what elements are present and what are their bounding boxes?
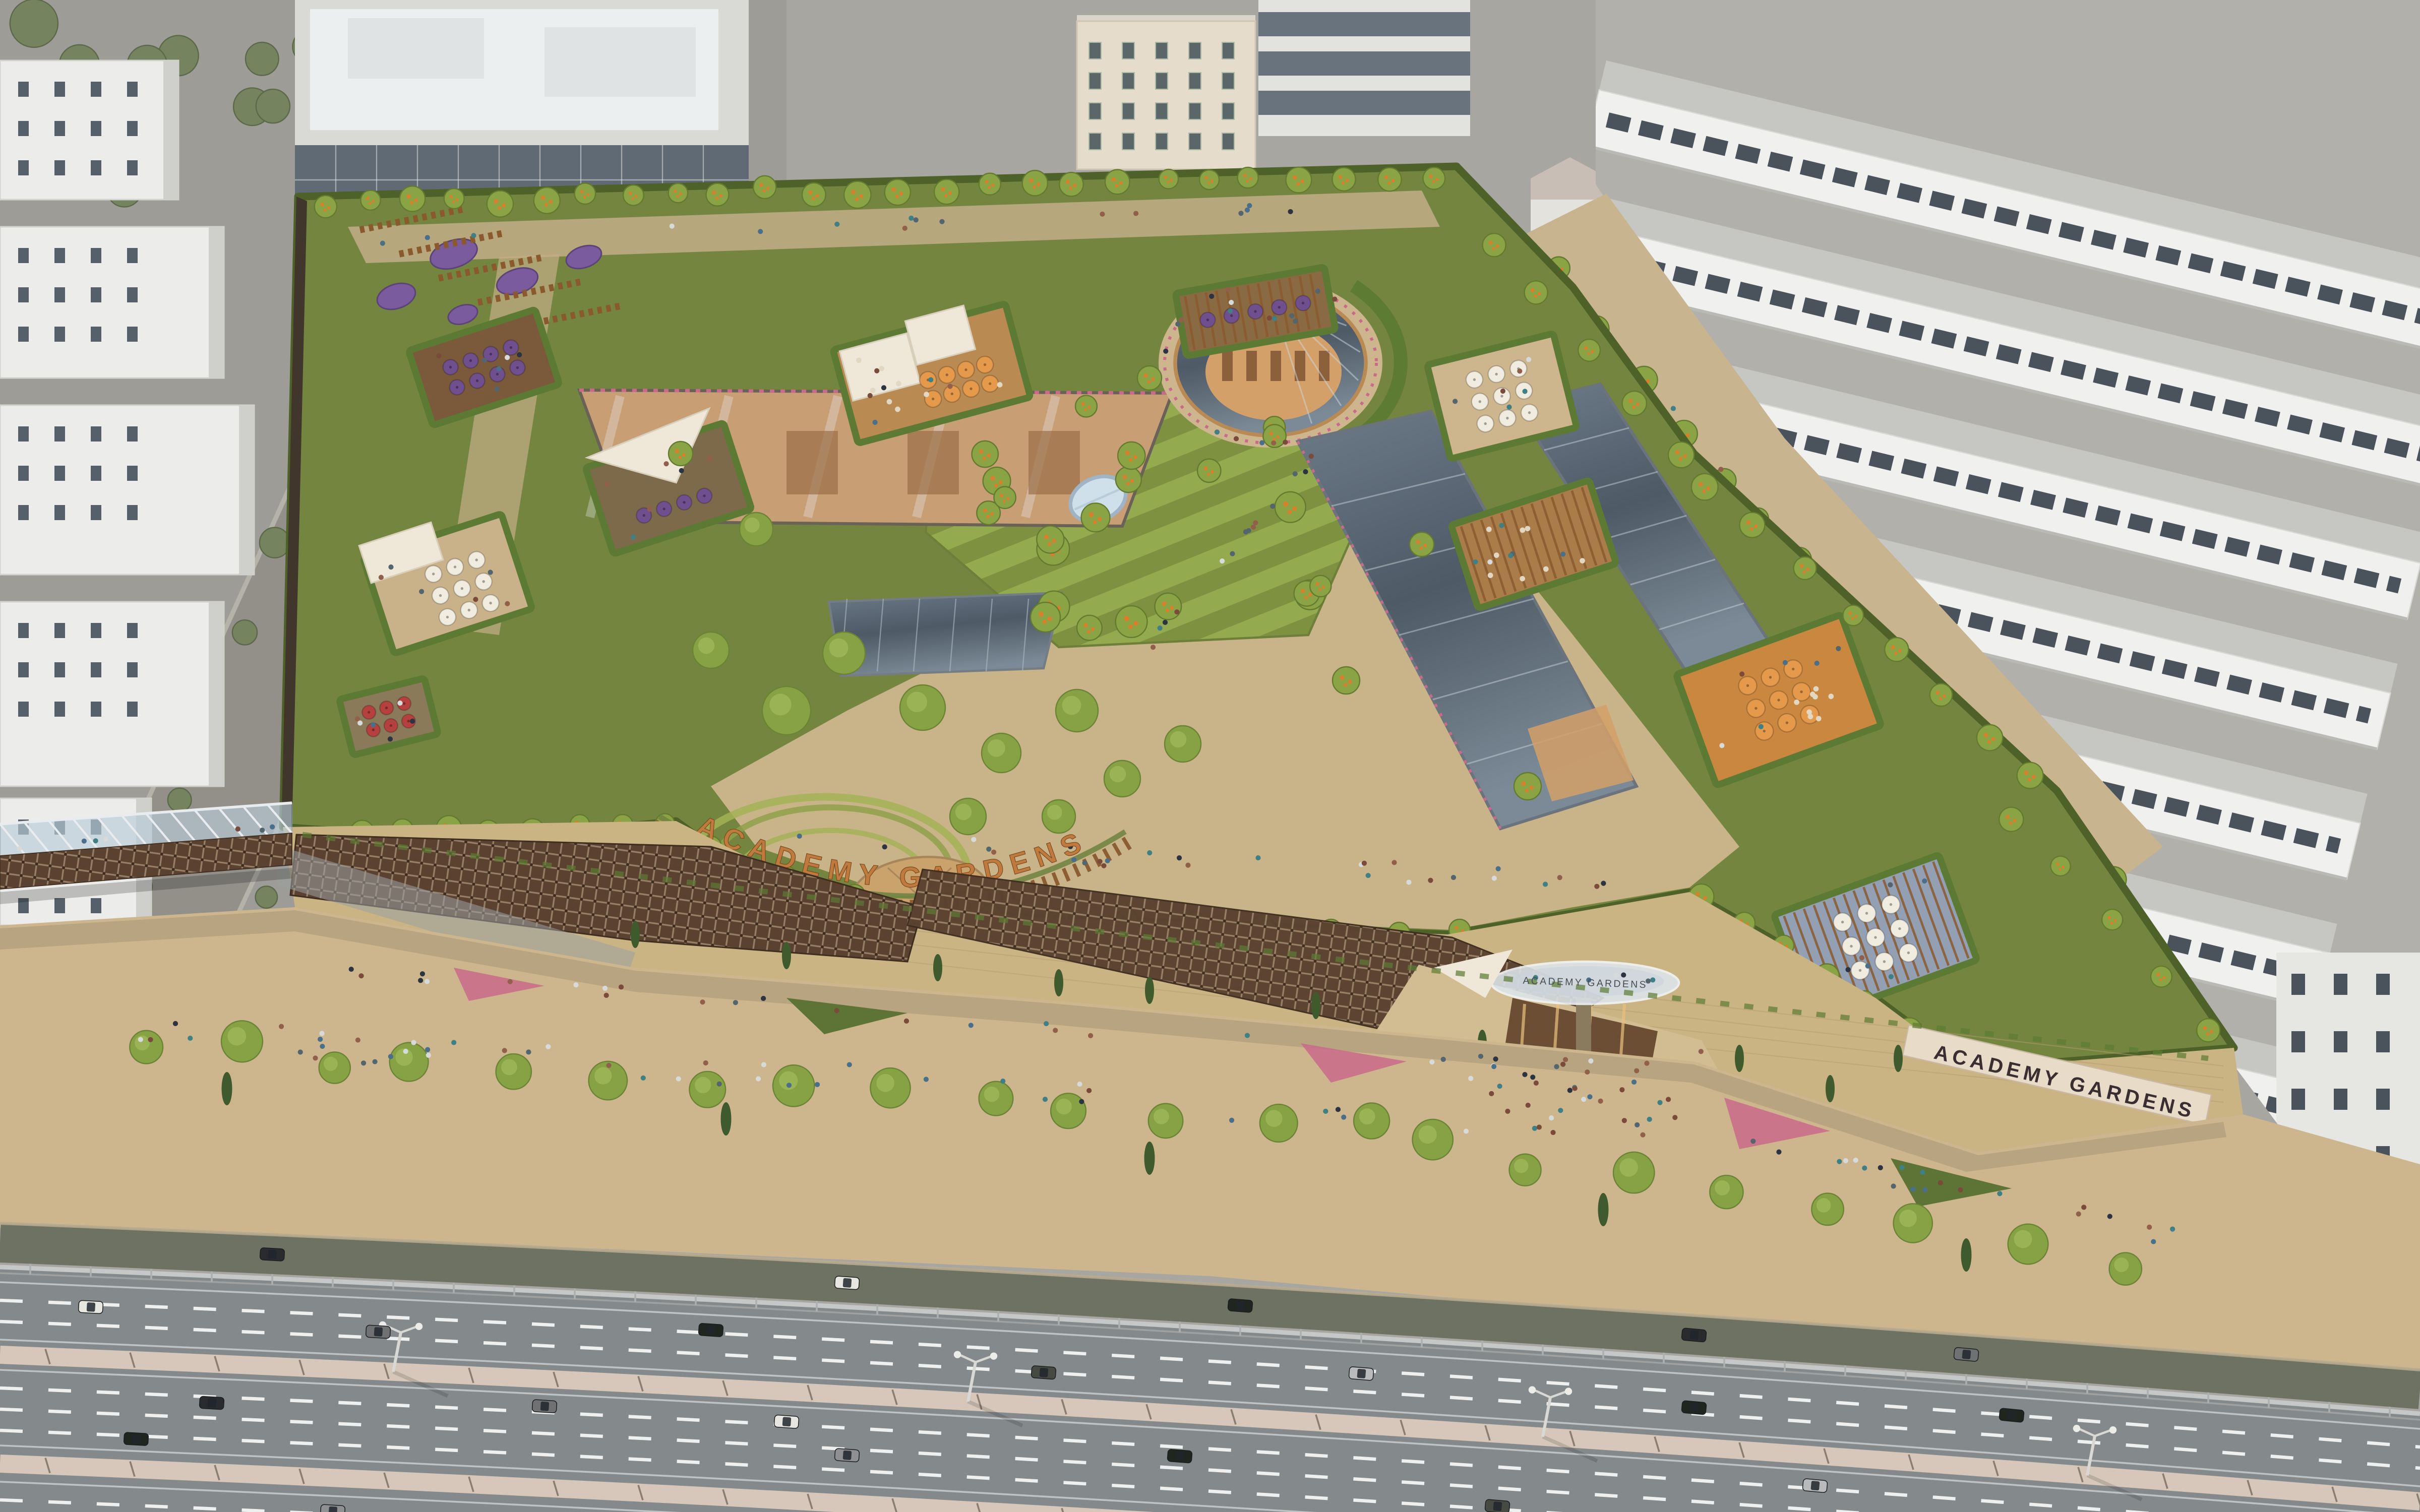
fruit bbox=[1093, 520, 1097, 524]
person bbox=[1247, 203, 1252, 208]
fruit bbox=[1391, 179, 1395, 182]
fruit bbox=[891, 187, 896, 192]
car bbox=[1999, 1408, 2024, 1422]
window bbox=[1189, 133, 1201, 150]
tree bbox=[1037, 526, 1064, 553]
fruit bbox=[2006, 815, 2010, 819]
block-side bbox=[163, 60, 178, 200]
car bbox=[260, 1247, 284, 1261]
window bbox=[127, 426, 138, 442]
person bbox=[1336, 1107, 1341, 1112]
tree-canopy bbox=[1578, 339, 1600, 361]
tree-canopy bbox=[1410, 532, 1434, 556]
person bbox=[1406, 879, 1411, 885]
window bbox=[1222, 133, 1234, 150]
tree bbox=[1116, 606, 1147, 638]
window bbox=[1089, 133, 1101, 150]
fruit bbox=[1144, 373, 1148, 377]
car bbox=[1167, 1449, 1192, 1463]
fruit bbox=[944, 194, 948, 198]
fruit bbox=[1746, 520, 1750, 524]
car bbox=[124, 1432, 148, 1446]
person bbox=[1309, 454, 1314, 459]
tree-canopy bbox=[1525, 281, 1548, 304]
tree-highlight bbox=[1110, 766, 1126, 782]
tree-highlight bbox=[698, 638, 714, 654]
fruit bbox=[988, 186, 991, 189]
window bbox=[2376, 974, 2390, 995]
fruit bbox=[502, 203, 506, 207]
tree bbox=[2102, 909, 2123, 930]
person bbox=[1147, 850, 1152, 855]
person bbox=[1259, 440, 1264, 445]
tree-canopy bbox=[1159, 169, 1178, 188]
tree bbox=[934, 179, 959, 204]
tree-canopy bbox=[1843, 605, 1863, 626]
tree bbox=[669, 183, 688, 203]
fruit bbox=[815, 194, 819, 198]
tree-canopy bbox=[1622, 391, 1647, 415]
tree-canopy bbox=[1691, 474, 1718, 500]
car bbox=[1681, 1401, 1707, 1415]
tree-highlight bbox=[324, 1057, 338, 1071]
person bbox=[761, 996, 766, 1001]
tree-canopy bbox=[1378, 168, 1402, 192]
person bbox=[1560, 1062, 1565, 1067]
tree-canopy bbox=[2197, 1019, 2220, 1042]
tree-highlight bbox=[1170, 731, 1186, 747]
fruit bbox=[2107, 916, 2111, 919]
tree bbox=[1022, 170, 1048, 196]
person bbox=[82, 839, 87, 844]
fruit bbox=[1126, 482, 1129, 485]
tree bbox=[1056, 689, 1098, 732]
fruit bbox=[1129, 458, 1133, 462]
fruit bbox=[1534, 295, 1537, 298]
tree-highlight bbox=[1062, 696, 1081, 715]
person bbox=[1635, 1122, 1640, 1127]
cypress-tree bbox=[721, 1102, 732, 1136]
window bbox=[1222, 73, 1234, 89]
person bbox=[1101, 863, 1106, 868]
tree-canopy bbox=[1116, 467, 1141, 492]
fruit bbox=[1301, 589, 1305, 593]
tree-canopy bbox=[802, 183, 826, 207]
person bbox=[148, 1037, 153, 1042]
person bbox=[1920, 1170, 1925, 1175]
fruit bbox=[498, 206, 501, 210]
person bbox=[1133, 211, 1138, 216]
person bbox=[1362, 861, 1367, 866]
tree bbox=[360, 191, 380, 210]
fruit bbox=[1081, 402, 1084, 406]
tree bbox=[623, 185, 644, 206]
tree-canopy bbox=[885, 179, 911, 205]
fruit bbox=[1296, 182, 1300, 186]
person bbox=[1428, 878, 1433, 883]
fruit bbox=[983, 509, 987, 513]
window bbox=[1189, 103, 1201, 119]
tree-canopy bbox=[534, 187, 560, 214]
person bbox=[103, 836, 108, 841]
person bbox=[173, 1021, 178, 1026]
person bbox=[1601, 881, 1606, 886]
tree bbox=[753, 176, 776, 199]
person bbox=[1271, 440, 1276, 446]
window bbox=[54, 623, 65, 638]
person bbox=[1288, 209, 1293, 214]
tree-canopy bbox=[260, 528, 290, 558]
person bbox=[1245, 208, 1250, 213]
window bbox=[1089, 73, 1101, 89]
person bbox=[1672, 1115, 1677, 1120]
window bbox=[1156, 103, 1168, 119]
person bbox=[1619, 1087, 1624, 1092]
fruit bbox=[1293, 175, 1297, 180]
fruit bbox=[1587, 352, 1590, 355]
tree-canopy bbox=[1238, 167, 1258, 188]
fruit bbox=[1696, 892, 1700, 896]
fruit bbox=[1249, 177, 1252, 180]
fruit bbox=[635, 195, 638, 198]
fruit bbox=[372, 200, 375, 203]
tree bbox=[870, 1068, 910, 1108]
person bbox=[797, 834, 802, 839]
tree-canopy bbox=[10, 0, 58, 47]
car bbox=[834, 1448, 860, 1462]
cypress-tree bbox=[782, 942, 791, 969]
tree bbox=[1410, 532, 1434, 556]
window bbox=[2334, 1089, 2347, 1110]
fruit bbox=[1133, 621, 1138, 625]
person bbox=[1558, 1108, 1563, 1113]
fruit bbox=[1432, 180, 1435, 183]
lamp-head bbox=[954, 1351, 961, 1358]
person bbox=[138, 1037, 143, 1042]
fruit bbox=[1591, 350, 1594, 353]
fruit bbox=[1151, 377, 1155, 381]
person bbox=[1550, 1130, 1555, 1135]
window bbox=[18, 121, 29, 136]
block-side bbox=[239, 405, 254, 575]
person bbox=[1922, 1187, 1927, 1192]
tree bbox=[689, 1072, 725, 1108]
fruit bbox=[895, 195, 898, 198]
window bbox=[1122, 42, 1134, 59]
tree-highlight bbox=[745, 518, 760, 533]
fruit bbox=[1089, 512, 1094, 517]
person bbox=[471, 233, 476, 238]
fruit bbox=[1128, 624, 1133, 629]
tree bbox=[232, 620, 257, 645]
person bbox=[320, 1044, 325, 1049]
person bbox=[1226, 287, 1231, 292]
tree bbox=[994, 486, 1015, 508]
person bbox=[1270, 503, 1275, 509]
fruit bbox=[1300, 179, 1304, 183]
person bbox=[939, 219, 944, 224]
person bbox=[1613, 973, 1618, 978]
person bbox=[1315, 289, 1320, 294]
car bbox=[834, 1276, 860, 1290]
tree-highlight bbox=[1265, 1110, 1283, 1127]
person bbox=[676, 1076, 681, 1081]
window bbox=[18, 623, 29, 638]
person bbox=[606, 1063, 611, 1068]
fruit bbox=[2210, 1030, 2213, 1033]
tree-canopy bbox=[256, 89, 290, 123]
tree-canopy bbox=[1197, 459, 1221, 482]
window bbox=[54, 248, 65, 263]
tree-canopy bbox=[487, 191, 513, 217]
window bbox=[2334, 974, 2347, 995]
tree-canopy bbox=[575, 183, 596, 204]
window bbox=[91, 898, 101, 913]
fruit bbox=[2163, 976, 2166, 979]
window bbox=[127, 248, 138, 263]
tree bbox=[740, 513, 773, 546]
person bbox=[526, 1049, 531, 1054]
tree bbox=[246, 42, 279, 76]
fruit bbox=[1348, 680, 1352, 684]
fruit bbox=[1322, 586, 1325, 589]
tree bbox=[1613, 1152, 1654, 1193]
cypress-tree bbox=[1826, 1075, 1835, 1102]
fruit bbox=[675, 449, 679, 453]
fruit bbox=[1003, 499, 1006, 502]
glass-band bbox=[1258, 51, 1470, 76]
tree bbox=[1275, 492, 1306, 523]
tree-canopy bbox=[844, 181, 871, 208]
tree-highlight bbox=[1619, 1158, 1638, 1177]
window bbox=[91, 466, 101, 481]
fruit bbox=[1276, 435, 1280, 439]
tree bbox=[496, 1054, 531, 1089]
person bbox=[969, 1023, 974, 1028]
person bbox=[1175, 322, 1180, 327]
tree bbox=[1148, 1104, 1183, 1138]
person bbox=[756, 1076, 761, 1081]
fruit bbox=[994, 483, 998, 487]
fruit bbox=[1170, 178, 1173, 181]
car bbox=[1954, 1347, 1979, 1361]
fruit bbox=[366, 197, 370, 200]
tree-highlight bbox=[594, 1067, 612, 1084]
fruit bbox=[1304, 596, 1308, 599]
tree-canopy bbox=[1116, 606, 1147, 638]
tree bbox=[1483, 233, 1506, 257]
person bbox=[986, 847, 991, 852]
fruit bbox=[1632, 406, 1636, 409]
person bbox=[1391, 860, 1397, 865]
fruit bbox=[1211, 470, 1214, 474]
window bbox=[127, 505, 138, 520]
person bbox=[1699, 1049, 1704, 1054]
window bbox=[127, 662, 138, 677]
person bbox=[2151, 1239, 2156, 1244]
fruit bbox=[2024, 771, 2028, 775]
car bbox=[698, 1323, 723, 1337]
fruit bbox=[1344, 683, 1348, 687]
tree bbox=[1165, 726, 1201, 762]
person bbox=[1634, 1068, 1639, 1073]
person bbox=[1938, 1180, 1943, 1185]
window bbox=[1189, 42, 1201, 59]
window bbox=[1089, 42, 1101, 59]
fruit bbox=[1315, 582, 1319, 586]
block-side bbox=[209, 227, 224, 378]
fruit bbox=[990, 512, 994, 516]
cypress-tree bbox=[631, 921, 640, 948]
fruit bbox=[1686, 433, 1690, 437]
person bbox=[1283, 439, 1288, 445]
fruit bbox=[1133, 455, 1137, 459]
fruit bbox=[494, 199, 499, 204]
tree bbox=[1310, 576, 1331, 597]
window bbox=[54, 662, 65, 677]
window bbox=[1122, 73, 1134, 89]
window bbox=[91, 327, 101, 342]
tree bbox=[1118, 442, 1145, 469]
tree-canopy bbox=[1077, 615, 1102, 641]
fruit bbox=[979, 449, 983, 454]
fruit bbox=[320, 203, 324, 207]
fruit bbox=[586, 193, 589, 196]
tree bbox=[1423, 167, 1445, 190]
fruit bbox=[1384, 175, 1388, 179]
window bbox=[91, 505, 101, 520]
tree bbox=[256, 89, 290, 123]
person bbox=[2081, 1205, 2086, 1210]
cypress-tree bbox=[1311, 992, 1320, 1019]
tree bbox=[1354, 1103, 1389, 1139]
tree-highlight bbox=[1817, 1198, 1831, 1213]
tree-canopy bbox=[1022, 170, 1048, 196]
tree-canopy bbox=[1794, 557, 1817, 580]
tree bbox=[10, 0, 58, 47]
tree bbox=[221, 1021, 263, 1062]
window bbox=[1122, 133, 1134, 150]
person bbox=[1478, 1054, 1483, 1059]
tree bbox=[1075, 396, 1097, 417]
person bbox=[1451, 875, 1456, 880]
tree-canopy bbox=[2017, 763, 2043, 789]
person bbox=[834, 222, 839, 227]
tree bbox=[773, 1065, 814, 1106]
fruit bbox=[1492, 247, 1495, 250]
fruit bbox=[1538, 292, 1541, 295]
window bbox=[91, 248, 101, 263]
tree-canopy bbox=[2151, 966, 2172, 987]
fruit bbox=[327, 206, 331, 210]
window bbox=[1089, 103, 1101, 119]
fruit bbox=[1584, 346, 1588, 350]
fruit bbox=[1496, 244, 1499, 248]
car bbox=[1485, 1499, 1510, 1512]
person bbox=[641, 1076, 646, 1081]
person bbox=[902, 226, 907, 231]
tree bbox=[1333, 667, 1360, 694]
fruit bbox=[1166, 609, 1169, 612]
tree bbox=[762, 686, 811, 735]
person bbox=[1837, 1159, 1842, 1164]
car bbox=[532, 1400, 557, 1413]
person bbox=[1587, 1094, 1592, 1099]
person bbox=[733, 1000, 738, 1005]
person bbox=[1532, 1126, 1537, 1131]
fruit bbox=[455, 198, 458, 201]
window bbox=[91, 160, 101, 175]
fruit bbox=[1287, 510, 1292, 515]
fruit bbox=[1435, 178, 1439, 181]
fruit bbox=[1006, 497, 1010, 500]
tree-canopy bbox=[934, 179, 959, 204]
tree-canopy bbox=[1059, 172, 1083, 196]
person bbox=[1862, 1165, 1867, 1170]
person bbox=[1554, 1064, 1559, 1069]
tree-canopy bbox=[1075, 396, 1097, 417]
tree bbox=[575, 183, 596, 204]
car bbox=[1681, 1328, 1707, 1342]
window bbox=[54, 121, 65, 136]
fruit bbox=[1112, 177, 1116, 181]
person bbox=[1255, 855, 1260, 860]
fruit bbox=[1803, 570, 1806, 573]
tree-canopy bbox=[1310, 576, 1331, 597]
window bbox=[127, 82, 138, 97]
fruit bbox=[991, 183, 994, 186]
tree-canopy bbox=[1105, 170, 1130, 195]
tree bbox=[1509, 1154, 1541, 1186]
person bbox=[380, 241, 385, 246]
tree bbox=[1077, 615, 1102, 641]
window bbox=[2376, 1031, 2390, 1052]
person bbox=[1088, 1033, 1093, 1038]
window bbox=[127, 121, 138, 136]
fruit bbox=[1204, 176, 1208, 179]
tree bbox=[319, 1052, 350, 1083]
person bbox=[502, 1048, 507, 1053]
fruit bbox=[1084, 408, 1087, 411]
tree-canopy bbox=[972, 441, 998, 467]
fruit bbox=[369, 202, 371, 205]
person bbox=[703, 1060, 708, 1065]
fruit bbox=[1699, 482, 1703, 486]
window bbox=[18, 82, 29, 97]
tree bbox=[2151, 966, 2172, 987]
person bbox=[1100, 212, 1105, 217]
person bbox=[373, 1059, 378, 1064]
window bbox=[91, 702, 101, 717]
person bbox=[1234, 436, 1239, 441]
person bbox=[1997, 1191, 2002, 1196]
van bbox=[774, 1415, 799, 1428]
car bbox=[320, 1504, 345, 1512]
fruit bbox=[1521, 781, 1526, 786]
person bbox=[904, 1019, 909, 1024]
tree bbox=[1155, 593, 1182, 620]
person bbox=[1105, 858, 1110, 863]
fruit bbox=[1087, 406, 1091, 409]
person bbox=[1044, 1021, 1049, 1026]
tree bbox=[823, 632, 865, 674]
office-roof-box bbox=[544, 27, 696, 97]
lamp-head bbox=[2073, 1425, 2080, 1432]
interior-shopfront bbox=[1028, 431, 1080, 494]
fruit bbox=[1894, 652, 1898, 655]
fruit bbox=[719, 194, 722, 198]
person bbox=[1151, 645, 1156, 650]
